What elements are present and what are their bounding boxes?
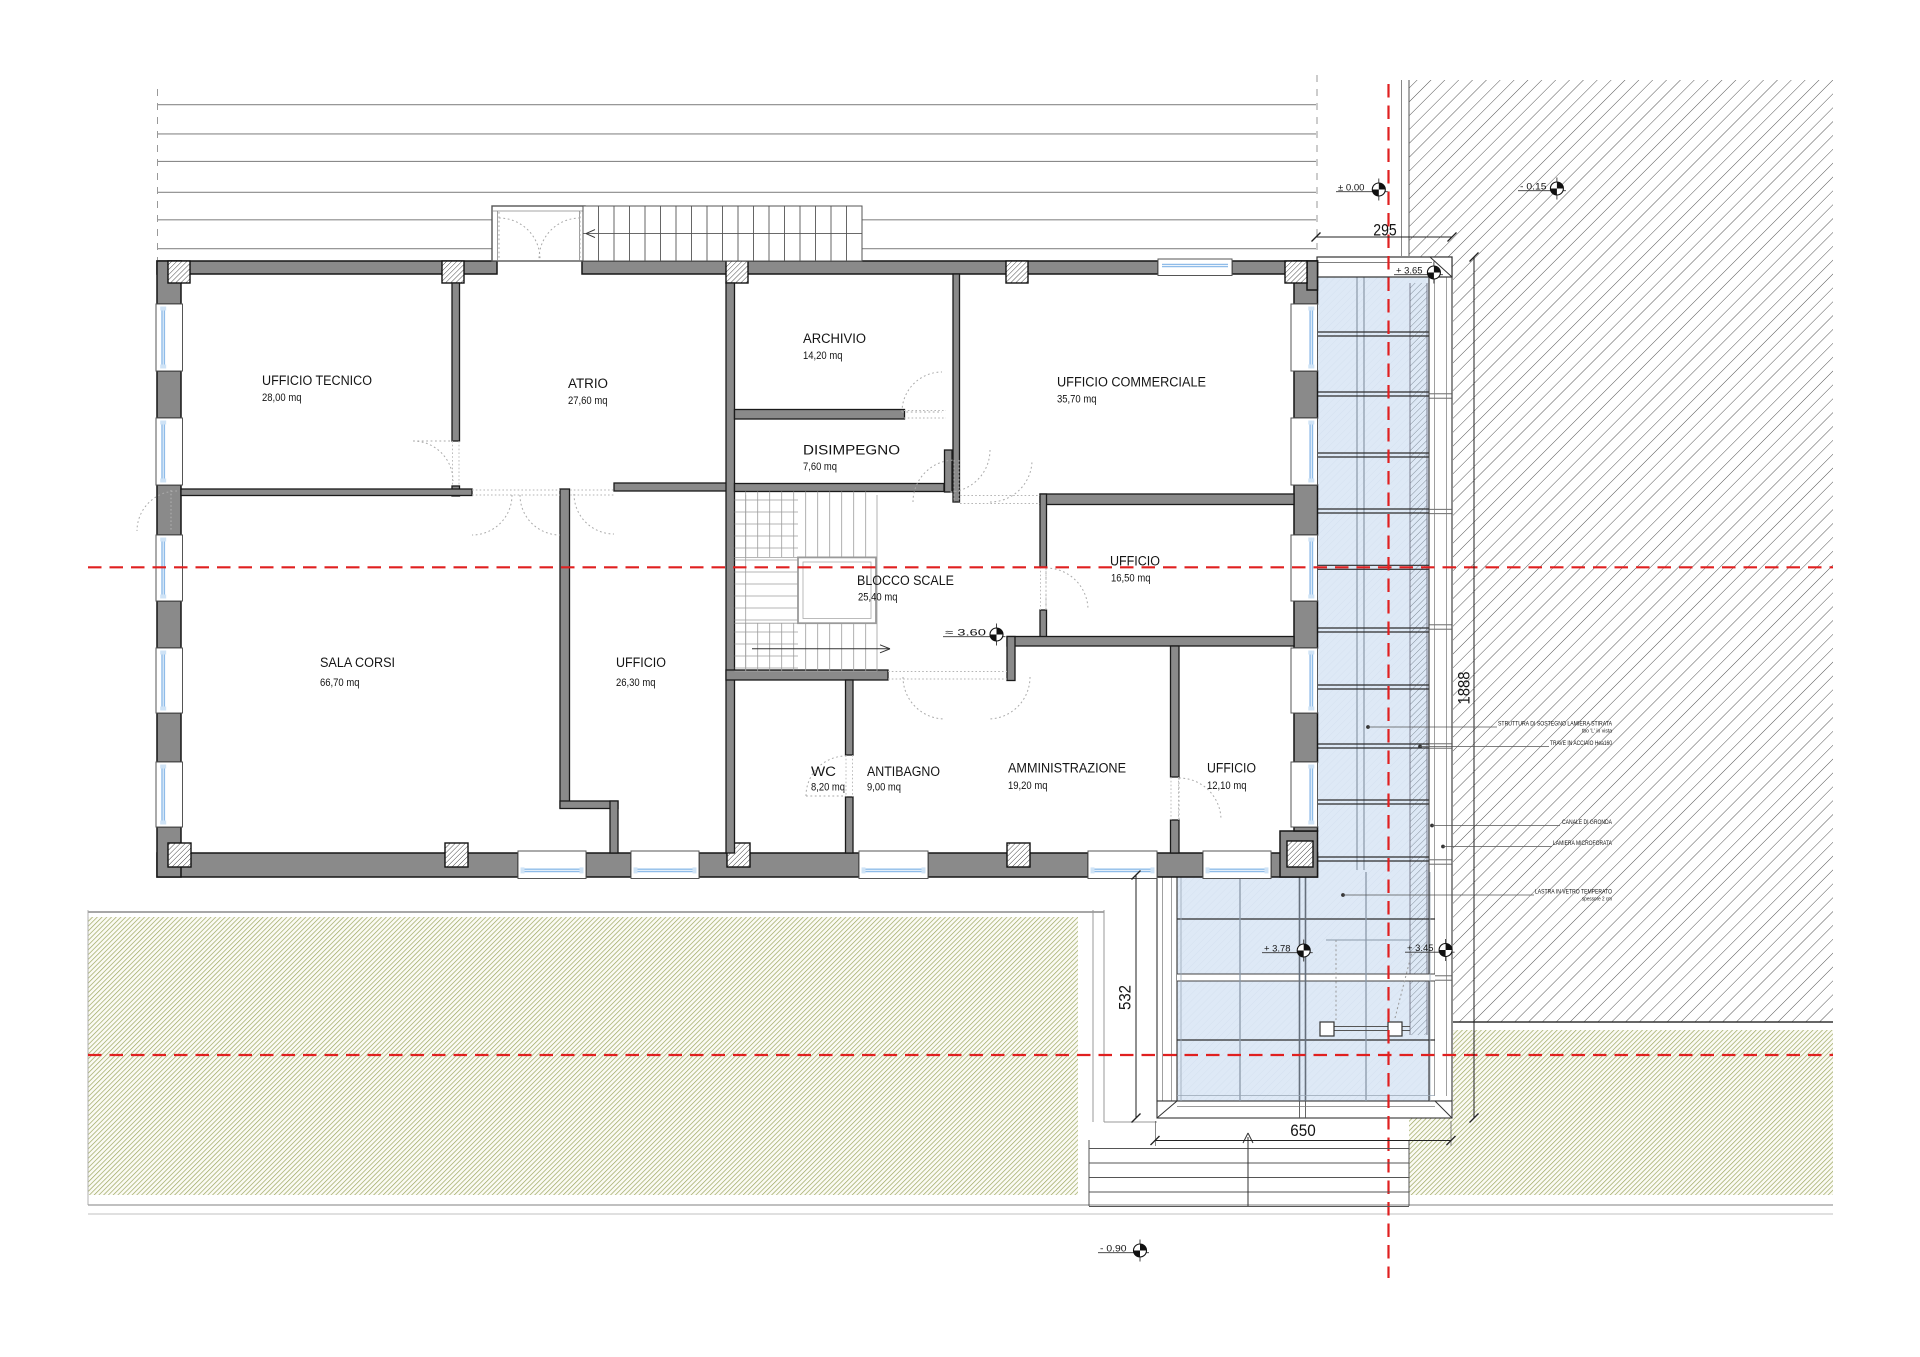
svg-text:- 0.15: - 0.15 xyxy=(1520,181,1547,192)
svg-text:UFFICIO: UFFICIO xyxy=(1110,554,1160,570)
svg-text:+ 3.78: + 3.78 xyxy=(1264,943,1291,954)
svg-text:14,20 mq: 14,20 mq xyxy=(803,350,843,362)
svg-text:+ 3.65: + 3.65 xyxy=(1396,265,1423,276)
svg-text:650: 650 xyxy=(1290,1121,1316,1140)
svg-text:± 0.00: ± 0.00 xyxy=(1338,182,1365,193)
svg-text:532: 532 xyxy=(1116,985,1135,1010)
svg-text:WC: WC xyxy=(811,764,836,780)
svg-text:66,70 mq: 66,70 mq xyxy=(320,677,360,689)
svg-text:ARCHIVIO: ARCHIVIO xyxy=(803,331,866,347)
svg-text:DISIMPEGNO: DISIMPEGNO xyxy=(803,443,900,459)
svg-text:ATRIO: ATRIO xyxy=(568,376,608,392)
svg-text:8,20 mq: 8,20 mq xyxy=(811,782,845,794)
svg-text:STRUTTURA DI SOSTEGNO LAMIERA: STRUTTURA DI SOSTEGNO LAMIERA STIRATA xyxy=(1498,721,1612,728)
svg-text:SALA CORSI: SALA CORSI xyxy=(320,655,395,671)
svg-text:spessore 2 cm: spessore 2 cm xyxy=(1582,897,1612,903)
svg-text:26,30 mq: 26,30 mq xyxy=(616,677,656,689)
svg-text:UFFICIO TECNICO: UFFICIO TECNICO xyxy=(262,373,372,389)
svg-text:+ 3.45: + 3.45 xyxy=(1407,942,1434,953)
svg-text:LASTRA IN VETRO TEMPERATO: LASTRA IN VETRO TEMPERATO xyxy=(1535,889,1612,896)
svg-text:- 0.90: - 0.90 xyxy=(1100,1243,1127,1254)
svg-text:CANALE DI GRONDA: CANALE DI GRONDA xyxy=(1562,819,1612,826)
svg-text:BLOCCO SCALE: BLOCCO SCALE xyxy=(857,573,954,589)
svg-text:UFFICIO COMMERCIALE: UFFICIO COMMERCIALE xyxy=(1057,375,1206,391)
svg-text:295: 295 xyxy=(1373,221,1397,240)
svg-text:12,10 mq: 12,10 mq xyxy=(1207,780,1247,792)
svg-text:≈ 3.60: ≈ 3.60 xyxy=(945,627,986,638)
svg-text:tbo 'L' in vista: tbo 'L' in vista xyxy=(1582,729,1613,735)
svg-text:AMMINISTRAZIONE: AMMINISTRAZIONE xyxy=(1008,761,1126,777)
svg-text:7,60 mq: 7,60 mq xyxy=(803,461,837,473)
svg-text:25,40 mq: 25,40 mq xyxy=(858,592,898,604)
svg-text:LAMIERA MICROFORATA: LAMIERA MICROFORATA xyxy=(1553,840,1612,847)
svg-text:1888: 1888 xyxy=(1455,672,1474,705)
svg-text:28,00 mq: 28,00 mq xyxy=(262,392,302,404)
svg-text:19,20 mq: 19,20 mq xyxy=(1008,780,1048,792)
svg-text:ANTIBAGNO: ANTIBAGNO xyxy=(867,764,940,780)
svg-text:16,50 mq: 16,50 mq xyxy=(1111,573,1151,585)
svg-text:UFFICIO: UFFICIO xyxy=(616,655,666,671)
svg-text:35,70 mq: 35,70 mq xyxy=(1057,394,1097,406)
svg-text:27,60 mq: 27,60 mq xyxy=(568,395,608,407)
svg-text:UFFICIO: UFFICIO xyxy=(1207,761,1256,777)
svg-text:9,00 mq: 9,00 mq xyxy=(867,782,901,794)
svg-text:TRAVE IN ACCIAIO Hea160: TRAVE IN ACCIAIO Hea160 xyxy=(1550,740,1612,747)
